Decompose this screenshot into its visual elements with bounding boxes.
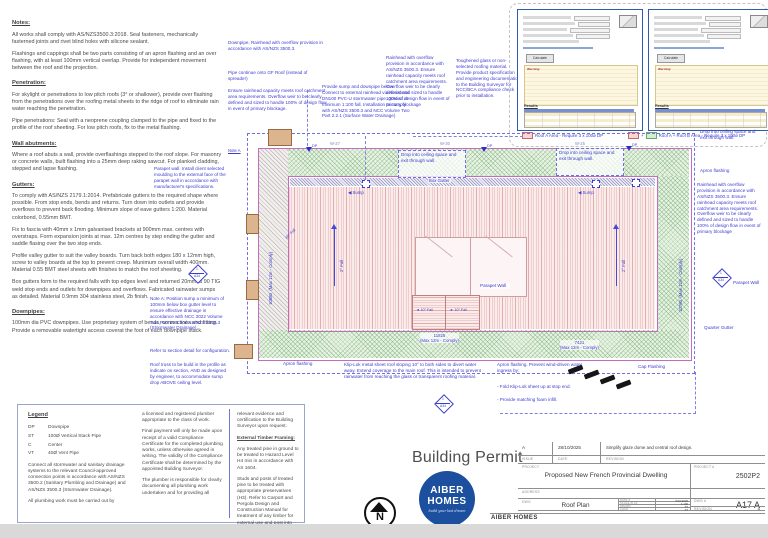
issue-label: ISSUE (522, 457, 533, 461)
legend-abbr: ST (28, 434, 48, 440)
legend-desc: 100Ø Vertical Stack Pipe (48, 434, 101, 440)
footer-rule (490, 513, 765, 514)
legend-divider (229, 409, 230, 518)
klip-lok-note: Klip-Lok metal sheet roof sloping 10° to… (344, 362, 482, 380)
calculator-inset-left: Calculate Warning: Results (517, 9, 643, 131)
legend-abbr: VT (28, 451, 48, 457)
downpipe-symbol (246, 280, 259, 300)
form-row (523, 40, 579, 43)
north-letter: N (366, 511, 394, 523)
drop-ceiling-box: Drop into ceiling space and exit through… (398, 150, 466, 178)
sump-marker (632, 179, 640, 187)
section-number: 1 (188, 268, 206, 271)
legend-abbr: DP (28, 425, 48, 431)
sump-marker (592, 180, 600, 188)
table-rule (518, 498, 765, 499)
dome-mullion (470, 238, 471, 296)
company-logo: AIBER HOMES build your last dream (419, 471, 475, 524)
footer-company: AIBER HOMES (491, 515, 538, 521)
legend-desc: 40Ø Vent Pipe (48, 451, 79, 457)
plan-dashed-extension-h (500, 413, 696, 414)
parapet-wall-hatch (259, 149, 288, 330)
fall-2-label: 2° Fall (339, 260, 344, 272)
fall-10-left: ◄ 10° Fall (416, 308, 433, 312)
form-row (654, 22, 706, 25)
roof-sketch-icon (619, 15, 637, 28)
leader-line (365, 136, 366, 180)
results-label: Results (524, 104, 538, 108)
leader-line (413, 136, 523, 137)
timber-para: Studs and posts of treated pine to be tr… (237, 477, 299, 524)
results-table (524, 112, 636, 128)
link-line (654, 47, 724, 49)
project-label: PROJECT (522, 465, 539, 469)
parapet-install-note: Parapet wall. Install client selected mo… (154, 166, 226, 190)
legend-column: Legend DP Downpipe ST 100Ø Vertical Stac… (28, 412, 136, 510)
sump-label: ◀ Sump (578, 190, 594, 196)
section-marker: 1 A34 (712, 268, 730, 286)
rev2-value: A (694, 507, 760, 511)
apron-flashing-note: Apron flashing (700, 168, 760, 174)
legend-item: DP Downpipe (28, 425, 136, 431)
legend-item: VT 40Ø Vent Pipe (28, 451, 136, 457)
cap-flashing-label: Cap Flashing (638, 364, 684, 370)
apron-prevent-note: Apron flashing. Prevent wind-driven wate… (497, 362, 589, 374)
address-label: ADDRESS (522, 490, 540, 494)
legend-abbr: C (28, 443, 48, 449)
dim-right: 10760 (Max 12m - Comply) (678, 259, 683, 312)
table-rule (518, 455, 765, 456)
annotation-pipe-continue: Pipe continue onto GF Roof (instead of s… (228, 70, 324, 82)
table-rule (518, 488, 765, 489)
calculator-inset-right: Calculate Warning: Results (648, 9, 768, 131)
calculate-button: Calculate (657, 54, 685, 63)
plumber-para: Final payment will only be made upon rec… (142, 429, 226, 473)
annotation-ensure-rainhead: Ensure rainhead capacity meets roof catc… (228, 88, 328, 112)
chkd-value: TT (658, 508, 688, 512)
warning-box: Warning: (524, 65, 638, 106)
legend-item: ST 100Ø Vertical Stack Pipe (28, 434, 136, 440)
lower-roof-bottom-band (259, 330, 689, 358)
wall-abutments-heading: Wall abutments: (12, 141, 222, 149)
issue-description: Simplify glaze dome and central roof des… (606, 445, 692, 450)
section-sheet: A34 (712, 279, 730, 282)
fall-arrow (616, 228, 617, 286)
rainhead-right-note: Rainhead with overflow provision in acco… (697, 182, 763, 235)
form-row (523, 16, 571, 19)
logo-line2: HOMES (419, 496, 475, 507)
legend-note: Connect all stormwater and sanitary drai… (28, 463, 136, 494)
form-row (654, 40, 710, 43)
window-tag: W-30 (440, 141, 450, 146)
results-label: Results (655, 104, 669, 108)
notes-para: To comply with AS/NZS 2179.1:2014. Prefa… (12, 193, 222, 222)
calculate-button: Calculate (526, 54, 554, 63)
table-rule (690, 463, 691, 510)
legend-box: Legend DP Downpipe ST 100Ø Vertical Stac… (17, 404, 305, 523)
legend-note: All plumbing work must be carried out by (28, 499, 136, 505)
drop-ceiling-note: Drop into ceiling space and exit through… (700, 129, 760, 141)
parapet-wall-note: Parapet Wall (733, 280, 763, 286)
form-field (576, 34, 610, 39)
form-field (709, 22, 741, 27)
legend-desc: Center (48, 443, 62, 449)
dp-label: DP (487, 144, 492, 148)
table-rule (600, 442, 601, 463)
break-mark (600, 374, 616, 384)
rainhead-symbol (234, 344, 253, 359)
table-rule (518, 463, 765, 464)
break-mark (616, 379, 632, 389)
plumber-column: a licensed and registered plumber approp… (142, 412, 226, 502)
title-table: A 28/10/2025 Simplify glaze dome and cen… (518, 442, 765, 510)
timber-para: relevant evidence and certification to t… (237, 412, 299, 431)
form-row (654, 28, 698, 31)
section-marker: 1 A34 (188, 264, 206, 282)
legend-desc: Downpipe (48, 425, 69, 431)
project-no: 2502P2 (694, 473, 760, 480)
plumber-para: The plumber is responsible for clearly d… (142, 478, 226, 497)
legend-item: C Center (28, 443, 136, 449)
revision-label: REVISION (606, 457, 624, 461)
fall-10-right: ► 10° Fall (450, 308, 467, 312)
drop-ceiling-box: Drop into ceiling space and exit through… (556, 148, 624, 176)
annotation-rainhead-top: Rainhead with overflow provision in acco… (386, 55, 452, 108)
section-number: 1 (434, 398, 452, 401)
dp-label: DP (312, 144, 317, 148)
rainhead-symbol (268, 129, 292, 146)
north-arrow: N (364, 497, 396, 524)
date-label: DATE (558, 457, 568, 461)
project-no-label: PROJECT # (694, 465, 714, 469)
quarter-gutter-note: Quarter Gutter (704, 325, 748, 331)
issue-value: A (522, 445, 525, 450)
apron-flashing-label: Apron flashing (283, 361, 333, 367)
plan-dashed-extension-v (695, 372, 696, 414)
refer-section-note: Refer to section detail for configuratio… (150, 348, 230, 354)
box-gutter-strip (290, 178, 655, 186)
dim-bottom2: 7421(Max 12m - Comply) (560, 340, 599, 350)
warning-label: Warning: (527, 67, 540, 71)
fold-note-1: - Fold Klip-Lok sheet up at stop end. (497, 384, 589, 390)
klip-lok-roof: ◄ 10° Fall ► 10° Fall (412, 295, 480, 330)
glazed-dome (415, 237, 527, 297)
form-row (523, 22, 575, 25)
dim-bottom: 11825(Max 12m - Comply) (420, 333, 459, 343)
downpipe-symbol (246, 214, 259, 234)
building-permit-title: Building Permit (412, 449, 523, 467)
section-marker: 1 A34 (434, 394, 452, 412)
notes-para: Fix to fascia with 40mm x 1mm galvanised… (12, 227, 222, 248)
annotation-downpipe-rainhead: Downpipe, Rainhead with overflow provisi… (228, 40, 324, 52)
form-field (570, 28, 610, 33)
dwg-name: Roof Plan (538, 502, 613, 509)
lower-roof-right-band (657, 176, 689, 330)
roof-sketch-icon (750, 15, 768, 28)
form-row (654, 16, 702, 19)
timber-heading: External Timber Framing: (237, 436, 299, 442)
table-rule (552, 442, 553, 463)
notes-heading: Notes: (12, 20, 222, 28)
parapet-wall-label: Parapet Wall (480, 283, 510, 289)
dp-label: DP (632, 143, 637, 147)
warning-label: Warning: (658, 67, 671, 71)
chkd-label: CHKD (620, 508, 628, 511)
section-sheet: A34 (434, 405, 452, 408)
form-row (523, 28, 567, 31)
window-tag: W-25 (575, 141, 585, 146)
timber-para: Any treated pine in ground to be treated… (237, 447, 299, 472)
legend-title: Legend (28, 412, 136, 419)
klip-lok-ridge (445, 296, 446, 329)
form-field (705, 16, 741, 21)
box-gutter-label: Box Gutter (428, 178, 451, 183)
notes-para: Flashings and cappings shall be two part… (12, 51, 222, 72)
form-field (574, 16, 610, 21)
logo-line1: AIBER (419, 485, 475, 496)
issue-date: 28/10/2025 (558, 445, 581, 450)
form-field (578, 22, 610, 27)
sump-marker (362, 180, 370, 188)
note-a-text: Note A: Position sump a minimum of 100mm… (150, 296, 230, 331)
section-number: 1 (712, 272, 730, 275)
fall-arrow (334, 228, 335, 286)
timber-column: relevant evidence and certification to t… (237, 412, 299, 524)
form-field (707, 34, 741, 39)
drawing-sheet: Notes: All works shall comply with AS/NZ… (0, 0, 768, 524)
form-row (654, 34, 704, 37)
note-a-pointer: Note A (228, 148, 241, 153)
fall-2-label: 2° Fall (621, 260, 626, 272)
notes-para: Pipe penetrations: Seal with a neoprene … (12, 118, 222, 132)
project-name: Proposed New French Provincial Dwelling (526, 472, 686, 479)
fold-note-2: - Provide matching foam infill. (497, 397, 589, 403)
sump-label: ◀ Sump (348, 190, 364, 196)
penetration-heading: Penetration: (12, 80, 222, 88)
results-table (655, 112, 767, 128)
lower-roof-top-band (288, 149, 689, 176)
form-field (701, 28, 741, 33)
link-line (523, 47, 593, 49)
plumber-para: a licensed and registered plumber approp… (142, 412, 226, 424)
section-sheet: A34 (188, 275, 206, 278)
form-row (523, 34, 573, 37)
dim-left: 10880 (Max 12m - Comply) (268, 252, 273, 305)
notes-para: All works shall comply with AS/NZS3500.3… (12, 32, 222, 46)
roof-truss-note: Roof truss to be build in the profile as… (150, 362, 230, 386)
window-tag: W-27 (330, 141, 340, 146)
leader-line (307, 90, 308, 146)
glass-reflection (425, 236, 452, 258)
warning-box: Warning: (655, 65, 768, 106)
notes-para: For skylight or penetrations to low pitc… (12, 92, 222, 113)
dwg-label: DWG (522, 500, 531, 504)
logo-tagline: build your last dream (419, 509, 475, 513)
glass-reflection (485, 236, 512, 258)
